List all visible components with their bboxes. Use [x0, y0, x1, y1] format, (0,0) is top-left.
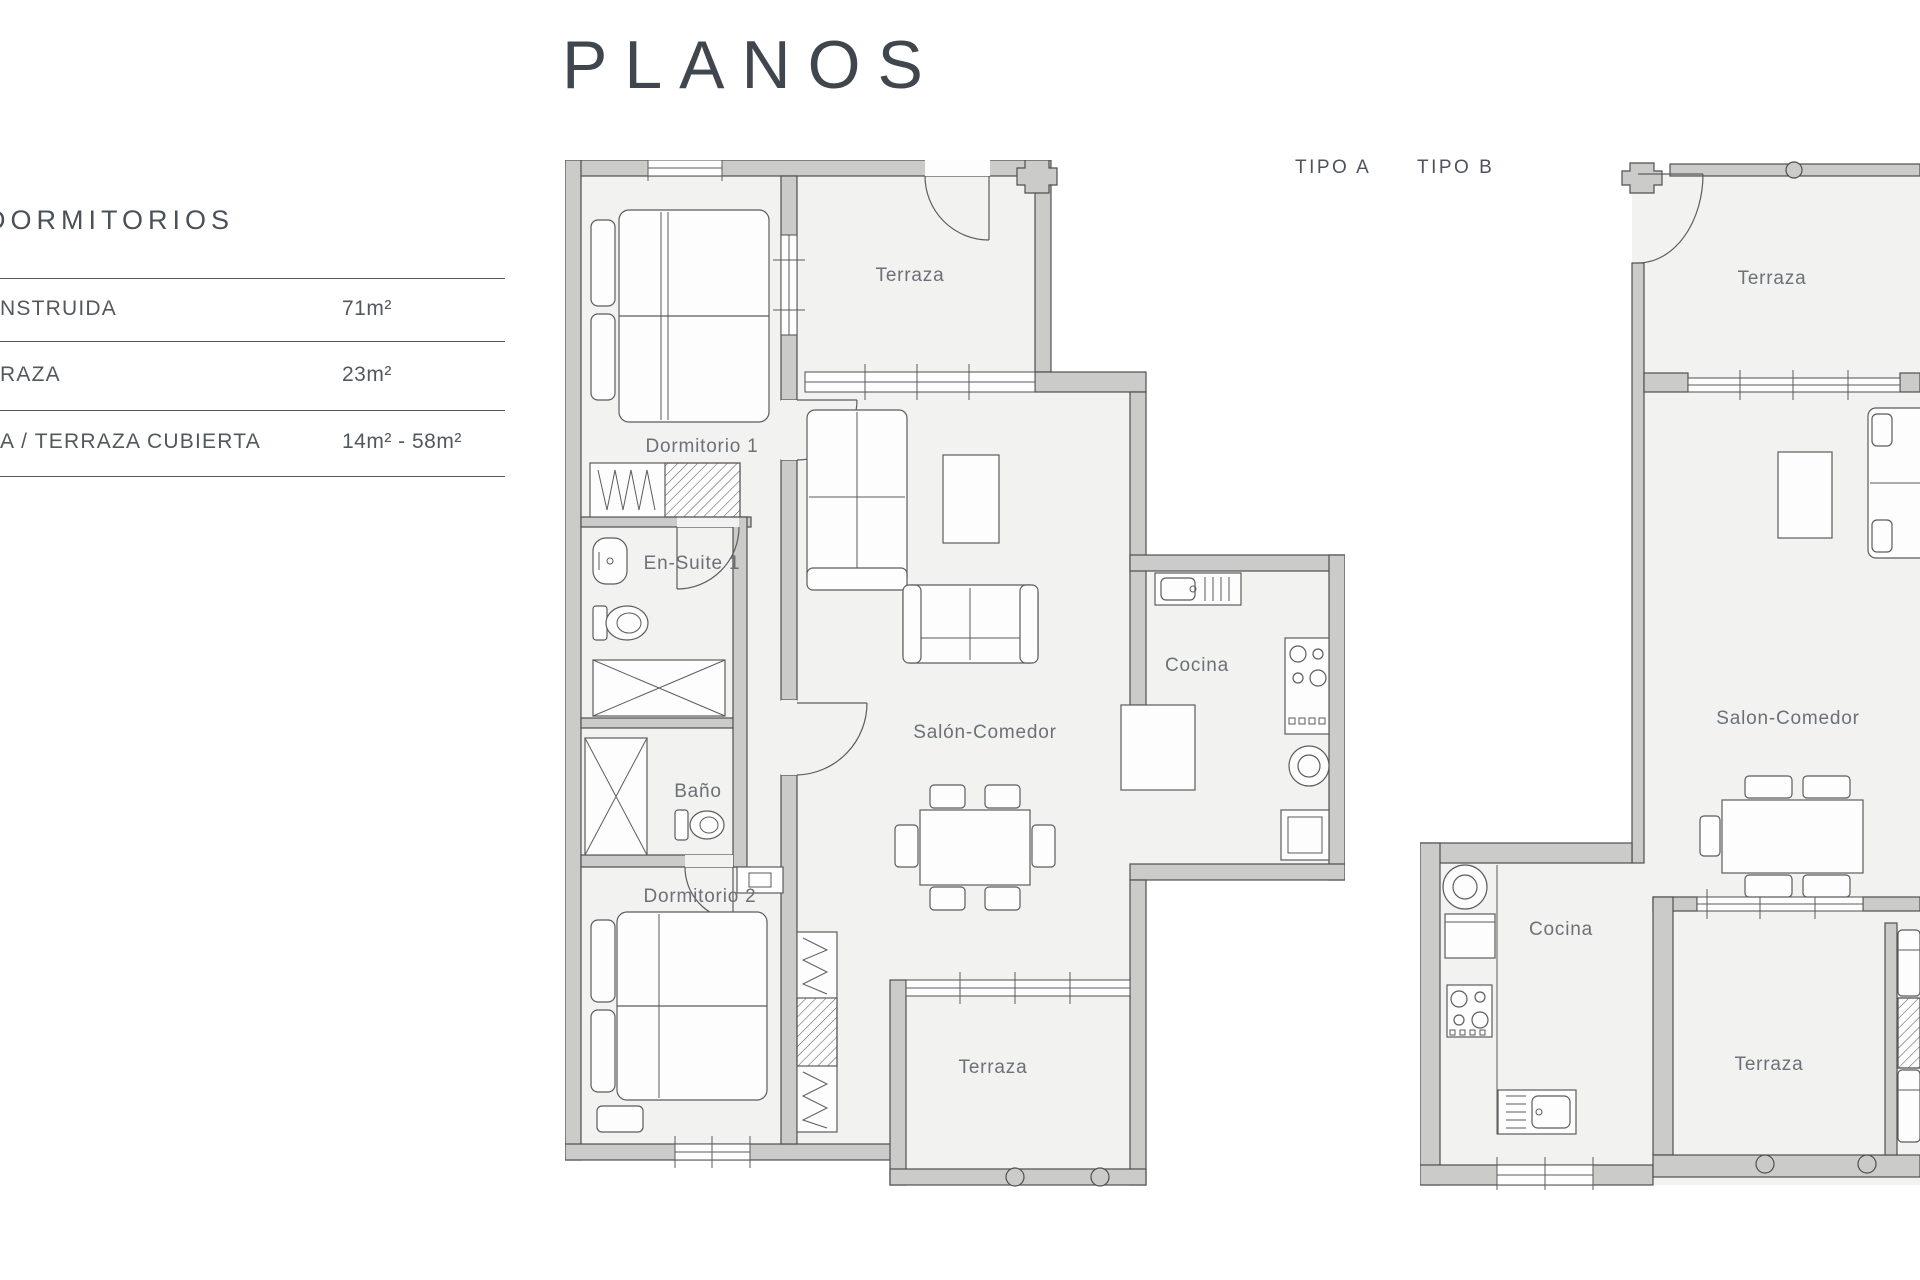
- closet: [797, 932, 837, 1132]
- column: [1006, 1168, 1024, 1186]
- stove-icon: [1285, 638, 1329, 734]
- room-label-terraza-top: Terraza: [1738, 268, 1807, 289]
- spec-row-value: 23m²: [342, 363, 392, 387]
- room-label-dormitorio1: Dormitorio 1: [645, 436, 758, 457]
- room-label-salon: Salon-Comedor: [1716, 708, 1859, 729]
- bathroom-sink-icon: [593, 538, 627, 584]
- sofa: [1868, 408, 1920, 558]
- corner-sofa: [807, 410, 907, 590]
- spec-heading: DORMITORIOS: [0, 205, 234, 236]
- column: [1091, 1168, 1109, 1186]
- spec-row-value: 14m² - 58m²: [342, 430, 462, 454]
- kitchen-sink-icon: [1155, 573, 1241, 605]
- fridge-icon: [1445, 914, 1495, 958]
- room-label-terraza-bottom: Terraza: [1735, 1054, 1804, 1075]
- page-title: PLANOS: [562, 26, 940, 104]
- divider: [0, 278, 505, 279]
- tv-stand: [1778, 452, 1832, 538]
- column: [1786, 162, 1802, 178]
- stove-icon: [1447, 985, 1492, 1037]
- room-label-salon: Salón-Comedor: [913, 722, 1056, 743]
- room-label-bano: Baño: [674, 781, 722, 802]
- closet: [1898, 998, 1920, 1068]
- divider: [0, 410, 505, 411]
- column: [1858, 1155, 1876, 1173]
- divider: [0, 476, 505, 477]
- closet: [590, 463, 740, 517]
- shower-icon: [585, 738, 647, 855]
- sofa: [903, 585, 1038, 663]
- toilet-icon: [593, 606, 648, 640]
- spec-row-value: 71m²: [342, 297, 392, 321]
- plan-sheet: PLANOS DORMITORIOS NSTRUIDA 71m² RAZA 23…: [0, 0, 1920, 1280]
- floorplan-tipo-a: Terraza Dormitorio 1 En-Suite 1 Baño Dor…: [565, 160, 1345, 1190]
- kitchen-sink-icon: [1498, 1090, 1576, 1134]
- tv-stand: [943, 455, 999, 543]
- toilet-icon: [675, 810, 724, 840]
- floorplan-tipo-b: Terraza Salon-Comedor Cocina Terraza: [1420, 160, 1920, 1190]
- spec-row-label: A / TERRAZA CUBIERTA: [0, 430, 261, 454]
- room-label-dormitorio2: Dormitorio 2: [643, 886, 756, 907]
- bathtub-icon: [593, 660, 725, 716]
- room-label-cocina: Cocina: [1165, 655, 1229, 676]
- spec-row-label: RAZA: [0, 363, 61, 387]
- room-label-ensuite: En-Suite 1: [644, 553, 741, 574]
- kitchen-island: [1121, 705, 1195, 790]
- spec-row-label: NSTRUIDA: [0, 297, 117, 321]
- room-label-cocina: Cocina: [1529, 919, 1593, 940]
- washer-icon: [1443, 865, 1487, 909]
- washer-icon: [1289, 746, 1329, 786]
- spec-heading-wrap: DORMITORIOS: [0, 205, 340, 245]
- column: [1756, 1155, 1774, 1173]
- room-label-terraza-top: Terraza: [876, 265, 945, 286]
- room-label-terraza-bottom: Terraza: [959, 1057, 1028, 1078]
- divider: [0, 341, 505, 342]
- oven-icon: [1281, 810, 1329, 860]
